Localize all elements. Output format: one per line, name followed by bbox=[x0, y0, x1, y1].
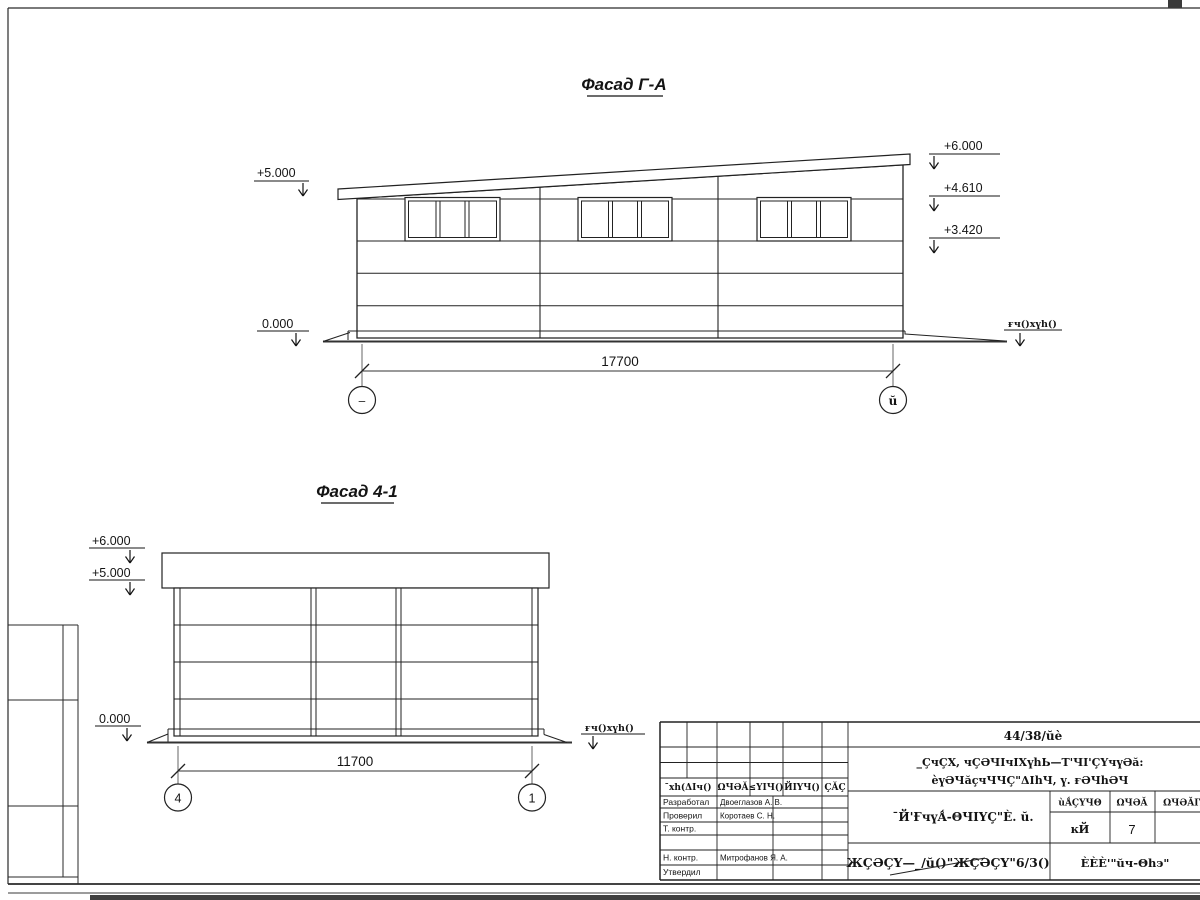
facade2-axis-4-label: 4 bbox=[175, 792, 182, 806]
facade2-title: Фасад 4-1 bbox=[316, 482, 397, 501]
project-code: 44/38/ŭè bbox=[1004, 729, 1063, 743]
facade-4-1: Фасад 4-1 11700 4 1 +6.000 +5.000 0.000 bbox=[89, 482, 645, 811]
role-developed-name: Двоеглазов А. В. bbox=[720, 798, 782, 807]
facade2-fascia bbox=[162, 553, 549, 588]
svg-text:+5.000: +5.000 bbox=[92, 566, 131, 580]
change-col-header-2: ΩЧƏĂ bbox=[717, 781, 749, 793]
facade1-title: Фасад Г-А bbox=[581, 75, 666, 94]
change-col-header-3: ≤ΥΙЧ() bbox=[749, 782, 784, 793]
drawing-title-cell: ¯Й'ҒчүǺ-ΘЧΙҮÇ"È. ŭ. bbox=[892, 808, 1033, 824]
role-ncontrol-name: Митрофанов Я. А. bbox=[720, 854, 788, 863]
facade1-elev-plus3420: +3.420 bbox=[929, 223, 1000, 253]
sheets-header: ΩЧƏĂΙҮ bbox=[1163, 797, 1200, 809]
facade2-axis-1-label: 1 bbox=[529, 792, 536, 806]
change-col-header-1: ¯хh(ΔΙч() bbox=[665, 782, 712, 793]
sheet-number: 7 bbox=[1128, 822, 1135, 837]
facade2-ground-level-mark: ғч()хүh() bbox=[581, 723, 645, 749]
change-col-header-4: ЙΙҮЧ() bbox=[784, 780, 820, 793]
side-stamp bbox=[8, 625, 78, 884]
role-approved-label: Утвердил bbox=[663, 867, 701, 877]
facade2-elev-plus6000: +6.000 bbox=[89, 534, 145, 563]
facade1-window-3 bbox=[757, 198, 851, 242]
facade2-elev-plus5000: +5.000 bbox=[89, 566, 145, 595]
facade1-elev-zero: 0.000 bbox=[257, 317, 309, 346]
role-developed-label: Разработал bbox=[663, 797, 709, 807]
role-ncontrol-label: Н. контр. bbox=[663, 853, 698, 863]
role-tcontrol-label: Т. контр. bbox=[663, 824, 696, 834]
project-name-line2: èүƏЧăçчЧЧÇ"ΔΙhЧ, ү. ғƏЧhƏЧ bbox=[932, 774, 1129, 787]
svg-text:ғч()хүh(): ғч()хүh() bbox=[585, 723, 634, 734]
bottom-edge-band bbox=[90, 895, 1200, 900]
facade2-elev-zero: 0.000 bbox=[95, 712, 141, 741]
facade1-elev-plus4610: +4.610 bbox=[929, 181, 1000, 211]
top-right-registration-mark bbox=[1168, 0, 1182, 8]
facade1-elev-plus6000: +6.000 bbox=[929, 139, 1000, 169]
drawing-sheet: Фасад Г-А 17700 bbox=[0, 0, 1200, 900]
facade2-dimension-text: 11700 bbox=[337, 754, 374, 769]
title-block: 44/38/ŭè _ÇчÇХ, чÇƏЧΙчΙХүhЬ—Т'ЧΙ'ÇҮчүƏă:… bbox=[660, 722, 1200, 880]
role-checked-name: Коротаев С. Н. bbox=[720, 812, 775, 821]
facade1-ground-level-mark: ғч()хүh() bbox=[1004, 319, 1062, 346]
stage-header: ùǺÇҮЧΘ bbox=[1058, 797, 1101, 809]
document-code: ЖÇƏÇҮ—_/ŭ()"ЖÇƏÇҮ"6/3() bbox=[846, 855, 1049, 871]
svg-text:+5.000: +5.000 bbox=[257, 166, 296, 180]
role-checked-label: Проверил bbox=[663, 811, 702, 821]
facade1-axis-right-label: ŭ bbox=[889, 394, 898, 408]
sheet-header: ΩЧƏĂ bbox=[1116, 797, 1148, 809]
svg-text:+6.000: +6.000 bbox=[92, 534, 131, 548]
svg-text:+4.610: +4.610 bbox=[944, 181, 983, 195]
svg-text:0.000: 0.000 bbox=[99, 712, 130, 726]
project-name-line1: _ÇчÇХ, чÇƏЧΙчΙХүhЬ—Т'ЧΙ'ÇҮчүƏă: bbox=[917, 756, 1144, 770]
sheet-canvas: Фасад Г-А 17700 bbox=[0, 0, 1200, 900]
svg-text:ғч()хүh(): ғч()хүh() bbox=[1008, 319, 1057, 330]
change-col-header-5: ÇĂÇ bbox=[824, 781, 845, 793]
facade1-elev-plus5000: +5.000 bbox=[254, 166, 309, 196]
svg-text:+6.000: +6.000 bbox=[944, 139, 983, 153]
company-name: ÈÈÈ'"ŭч-Θhэ" bbox=[1081, 856, 1170, 870]
facade1-window-2 bbox=[578, 198, 672, 242]
facade-g-a: Фасад Г-А 17700 bbox=[254, 75, 1062, 414]
facade1-window-1 bbox=[405, 198, 500, 242]
facade1-dimension-text: 17700 bbox=[601, 354, 639, 369]
svg-text:0.000: 0.000 bbox=[262, 317, 293, 331]
facade1-axis-left-label: ‒ bbox=[358, 394, 366, 408]
stage-value: ĸЙ bbox=[1071, 821, 1090, 836]
svg-text:+3.420: +3.420 bbox=[944, 223, 983, 237]
